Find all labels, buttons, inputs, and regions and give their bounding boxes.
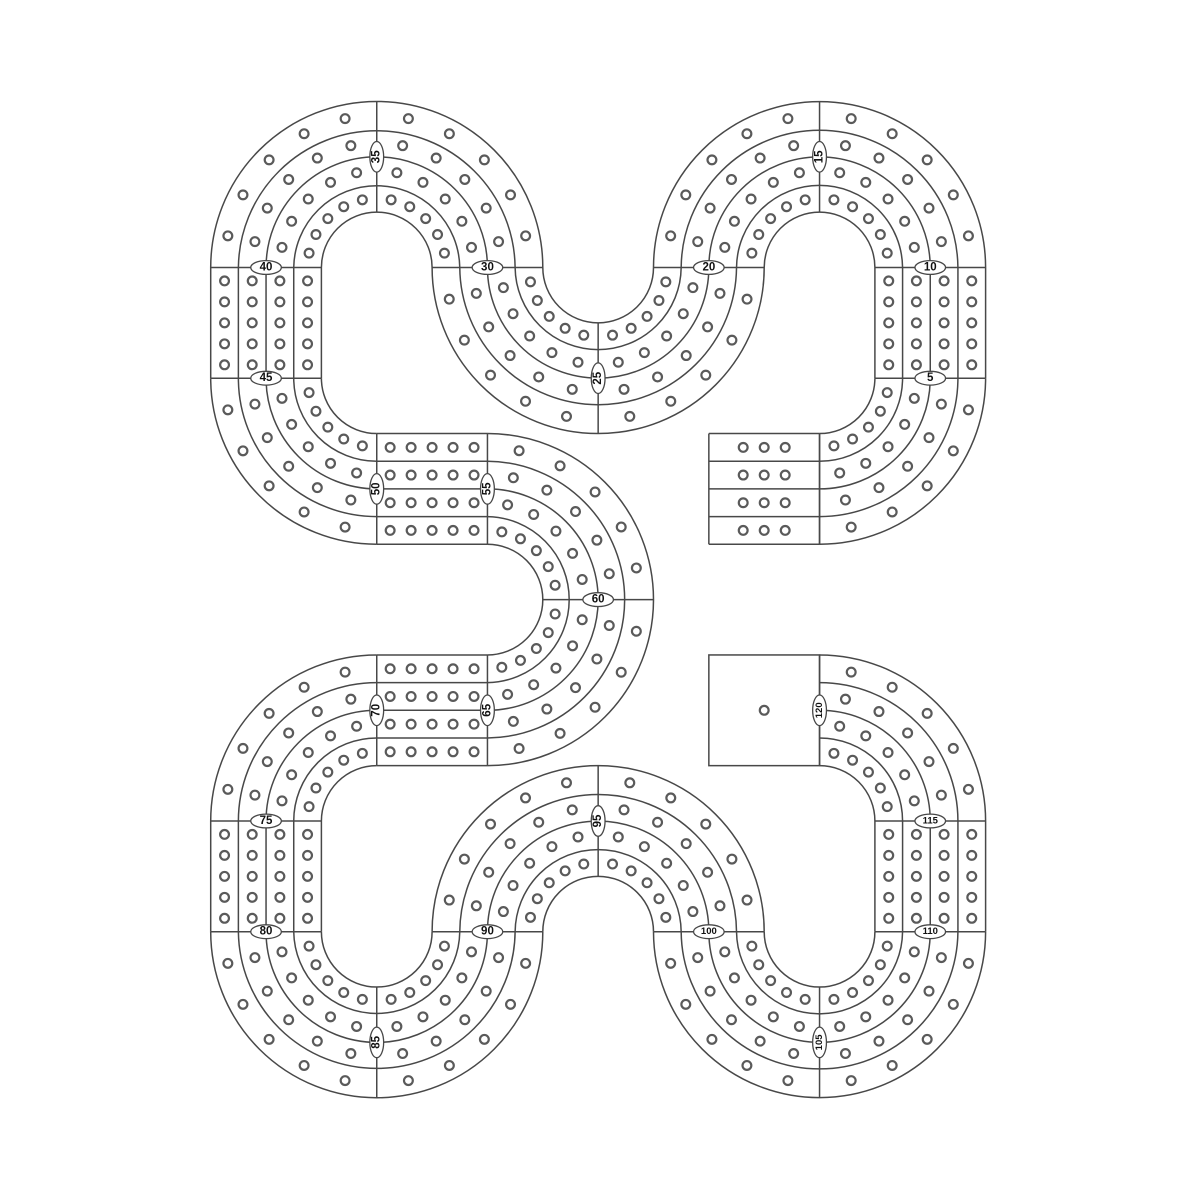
- svg-text:100: 100: [701, 926, 717, 937]
- svg-text:60: 60: [592, 594, 605, 606]
- svg-text:70: 70: [371, 704, 383, 717]
- svg-text:10: 10: [924, 262, 937, 274]
- svg-text:45: 45: [260, 372, 273, 384]
- svg-text:20: 20: [702, 262, 715, 274]
- svg-text:120: 120: [814, 702, 825, 718]
- svg-text:110: 110: [923, 926, 938, 937]
- svg-text:65: 65: [481, 703, 493, 716]
- svg-text:50: 50: [371, 483, 383, 496]
- svg-text:115: 115: [923, 816, 939, 827]
- svg-text:55: 55: [481, 482, 493, 495]
- svg-text:15: 15: [814, 150, 826, 163]
- svg-text:40: 40: [260, 262, 273, 274]
- svg-text:85: 85: [371, 1035, 383, 1048]
- svg-text:95: 95: [592, 814, 604, 827]
- svg-text:75: 75: [260, 815, 273, 827]
- svg-text:5: 5: [927, 372, 934, 384]
- svg-text:25: 25: [592, 371, 604, 384]
- svg-text:30: 30: [481, 262, 494, 274]
- svg-text:105: 105: [814, 1034, 825, 1051]
- svg-text:80: 80: [260, 926, 273, 938]
- svg-text:90: 90: [481, 926, 494, 938]
- svg-text:35: 35: [371, 150, 383, 163]
